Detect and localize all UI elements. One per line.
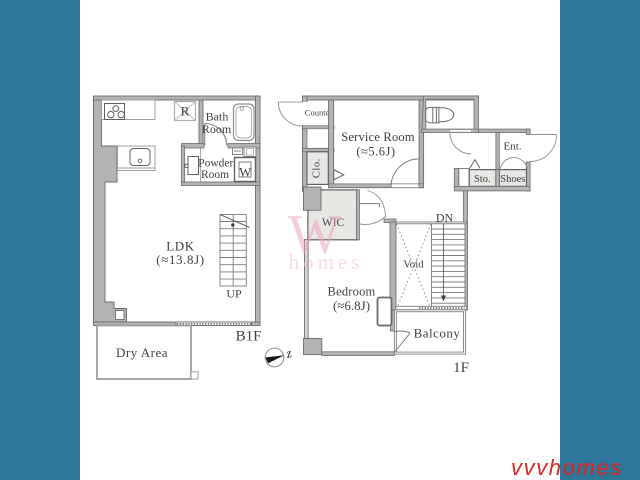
svg-text:Dry Area: Dry Area bbox=[116, 345, 168, 360]
svg-text:Void: Void bbox=[403, 259, 424, 271]
svg-text:Balcony: Balcony bbox=[414, 326, 461, 341]
svg-text:Room: Room bbox=[201, 169, 229, 181]
svg-text:Bedroom: Bedroom bbox=[328, 285, 376, 299]
svg-text:1F: 1F bbox=[453, 360, 469, 376]
svg-text:(≈6.8J): (≈6.8J) bbox=[333, 298, 370, 313]
svg-text:UP: UP bbox=[226, 287, 242, 301]
svg-text:Ent.: Ent. bbox=[503, 141, 521, 153]
svg-text:Service Room: Service Room bbox=[341, 130, 415, 144]
svg-text:(≈13.8J): (≈13.8J) bbox=[156, 252, 204, 267]
svg-text:Sto.: Sto. bbox=[474, 174, 491, 185]
svg-text:Shoes: Shoes bbox=[500, 174, 525, 185]
svg-text:Room: Room bbox=[202, 122, 232, 136]
svg-text:DN: DN bbox=[436, 211, 454, 225]
svg-text:Clo.: Clo. bbox=[311, 158, 322, 178]
svg-text:W: W bbox=[239, 165, 252, 180]
svg-text:vvvhomes: vvvhomes bbox=[511, 455, 623, 480]
svg-text:homes: homes bbox=[289, 250, 364, 274]
svg-text:Powder: Powder bbox=[198, 158, 233, 170]
svg-text:(≈5.6J): (≈5.6J) bbox=[356, 145, 395, 159]
svg-text:R: R bbox=[181, 104, 190, 119]
svg-text:B1F: B1F bbox=[236, 329, 262, 345]
